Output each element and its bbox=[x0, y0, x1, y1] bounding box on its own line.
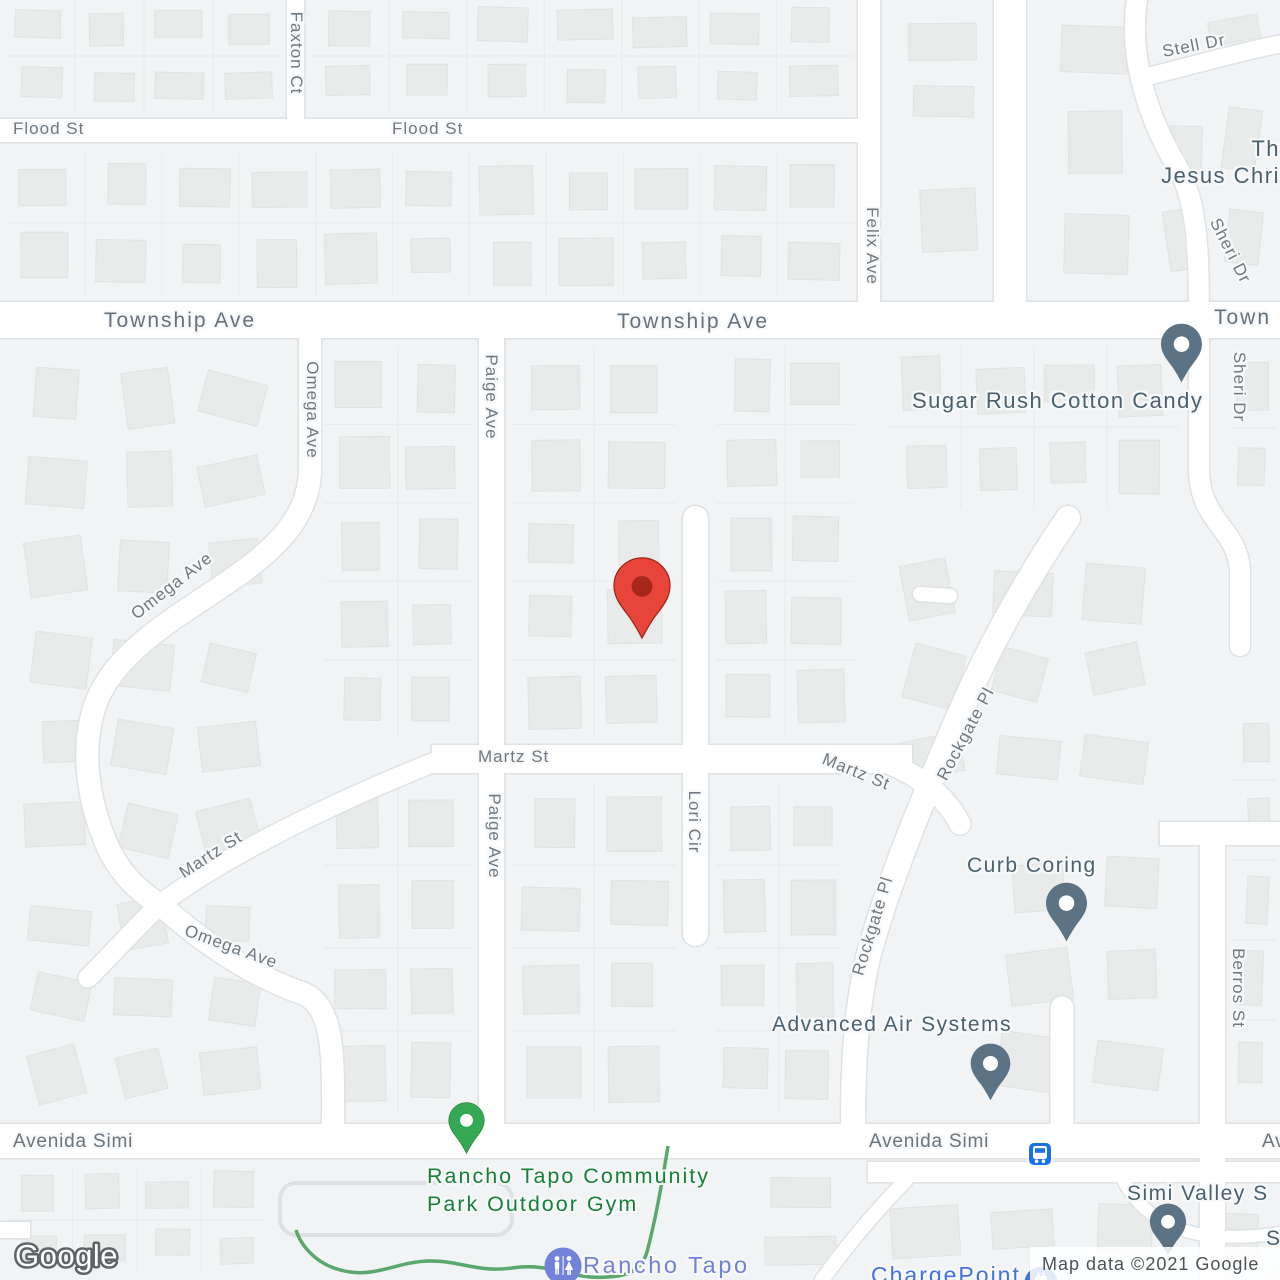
street-label-sheri-dr-2: Sheri Dr bbox=[1229, 352, 1249, 422]
rancho-tapo-circle-icon[interactable] bbox=[544, 1247, 582, 1280]
street-label-township-ave-1: Township Ave bbox=[104, 309, 256, 333]
poi-label-park-line2: Park Outdoor Gym bbox=[427, 1191, 710, 1219]
street-label-martz-st-mid: Martz St bbox=[478, 747, 549, 767]
poi-label-rancho-tapo-park[interactable]: Rancho Tapo Community Park Outdoor Gym bbox=[427, 1163, 710, 1218]
road-paige-ave bbox=[479, 338, 504, 1128]
street-label-avenida-simi-2: Avenida Simi bbox=[869, 1131, 989, 1153]
road-south-street bbox=[868, 1162, 1280, 1182]
street-label-lori-cir: Lori Cir bbox=[684, 791, 704, 854]
street-label-avenida-simi-1: Avenida Simi bbox=[13, 1131, 133, 1153]
road-lori-cir bbox=[683, 506, 708, 946]
street-label-felix-ave: Felix Ave bbox=[862, 207, 882, 285]
attribution-text: Map data ©2021 Google bbox=[1042, 1254, 1259, 1275]
street-label-flood-st-2: Flood St bbox=[392, 119, 463, 139]
map-canvas[interactable]: Flood St Flood St Faxton Ct Township Ave… bbox=[0, 0, 1280, 1280]
poi-pin-sugar-rush[interactable] bbox=[1160, 323, 1203, 388]
road-stub bbox=[920, 594, 950, 596]
street-label-township-ave-2: Township Ave bbox=[617, 310, 769, 334]
poi-label-park-line1: Rancho Tapo Community bbox=[427, 1163, 710, 1191]
street-label-paige-ave-2: Paige Ave bbox=[484, 793, 504, 878]
map-attribution: Map data ©2021 Google bbox=[1030, 1247, 1280, 1280]
bus-stop-icon[interactable] bbox=[1029, 1143, 1051, 1165]
street-label-faxton-ct: Faxton Ct bbox=[286, 12, 306, 95]
road-unnamed-vertical bbox=[994, 0, 1026, 304]
street-label-flood-st-1: Flood St bbox=[13, 119, 84, 139]
poi-label-rancho-tapo[interactable]: Rancho Tapo bbox=[583, 1252, 750, 1279]
street-label-paige-ave-1: Paige Ave bbox=[481, 354, 501, 439]
poi-label-sugar-rush-cotton-candy[interactable]: Sugar Rush Cotton Candy bbox=[912, 388, 1203, 414]
road-avenida-simi bbox=[0, 1124, 1280, 1158]
google-logo[interactable]: Google bbox=[10, 1233, 140, 1279]
street-label-berros-st: Berros St bbox=[1228, 948, 1248, 1028]
destination-pin-body bbox=[614, 558, 670, 638]
road-berros-st bbox=[1200, 822, 1225, 1280]
poi-label-church-line1: Th bbox=[1150, 135, 1280, 162]
poi-label-advanced-air-systems[interactable]: Advanced Air Systems bbox=[772, 1013, 1012, 1037]
poi-label-church-partial[interactable]: Th Jesus Chri bbox=[1150, 135, 1280, 189]
park-pin-rancho-tapo[interactable] bbox=[448, 1102, 485, 1159]
street-label-omega-ave-1: Omega Ave bbox=[302, 361, 322, 459]
poi-pin-advanced-air[interactable] bbox=[970, 1043, 1011, 1106]
street-label-avenida-simi-partial: Av bbox=[1262, 1131, 1280, 1153]
destination-pin[interactable] bbox=[613, 555, 671, 646]
poi-label-church-line2: Jesus Chri bbox=[1150, 162, 1280, 189]
poi-pin-curb-coring[interactable] bbox=[1045, 882, 1088, 947]
street-label-township-ave-partial: Town bbox=[1214, 306, 1271, 330]
poi-label-chargepoint[interactable]: ChargePoint bbox=[871, 1262, 1021, 1280]
poi-label-curb-coring[interactable]: Curb Coring bbox=[967, 854, 1097, 878]
svg-text:Google: Google bbox=[15, 1238, 118, 1273]
